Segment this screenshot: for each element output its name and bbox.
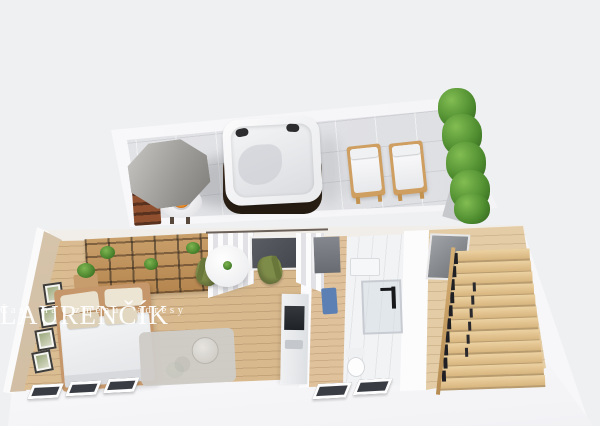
railing-post (442, 371, 446, 382)
kitchenette (280, 294, 309, 384)
hot-tub-headrest (286, 124, 299, 133)
facade-window (312, 382, 352, 399)
wall-frame (31, 349, 54, 373)
railing-post (443, 357, 447, 368)
lounger-leg (398, 194, 403, 201)
railing-post (473, 282, 476, 291)
sun-lounger (346, 143, 385, 198)
shower-arm (380, 288, 393, 291)
entry-door (311, 237, 340, 274)
blue-mat (321, 288, 338, 315)
railing-post (471, 295, 474, 304)
staircase (428, 248, 549, 394)
railing-post (468, 322, 471, 331)
facade-window (103, 377, 140, 393)
fire-table-leg (186, 217, 190, 224)
coffee-table (191, 336, 219, 364)
railing-post (465, 348, 468, 357)
area-rug (139, 328, 237, 387)
kitchen-sink (285, 340, 303, 349)
shelf-plant (186, 242, 200, 254)
railing-post (450, 292, 454, 303)
dining-table (205, 245, 249, 287)
railing-post (470, 309, 473, 318)
shelf-plant (144, 258, 158, 270)
wall-frame (34, 328, 56, 352)
hedge-bush (454, 194, 490, 224)
watermark-subtitle: Čas na změnu adresy (0, 304, 187, 316)
side-table (174, 356, 191, 373)
railing-post (466, 335, 469, 344)
facade-window-group-middle (314, 378, 397, 406)
walk-in-shower (361, 279, 403, 334)
facade-window (353, 378, 393, 395)
facade-window (65, 380, 102, 396)
sun-lounger (388, 140, 427, 195)
floorplan-render: LAURENČÍK Čas na změnu adresy (0, 0, 600, 426)
fire-table-leg (170, 217, 174, 224)
facade-window (27, 383, 64, 399)
bathroom-vanity (350, 258, 380, 276)
nightstand-plant (77, 263, 95, 278)
stair-tread (438, 375, 545, 391)
oven-appliance (284, 306, 304, 330)
lounger-leg (356, 197, 361, 204)
table-plant (223, 261, 232, 270)
hedge (430, 88, 490, 224)
hot-tub (222, 116, 323, 207)
shelf-plant (100, 246, 115, 259)
lounger-leg (420, 192, 425, 199)
lounger-leg (378, 195, 383, 202)
